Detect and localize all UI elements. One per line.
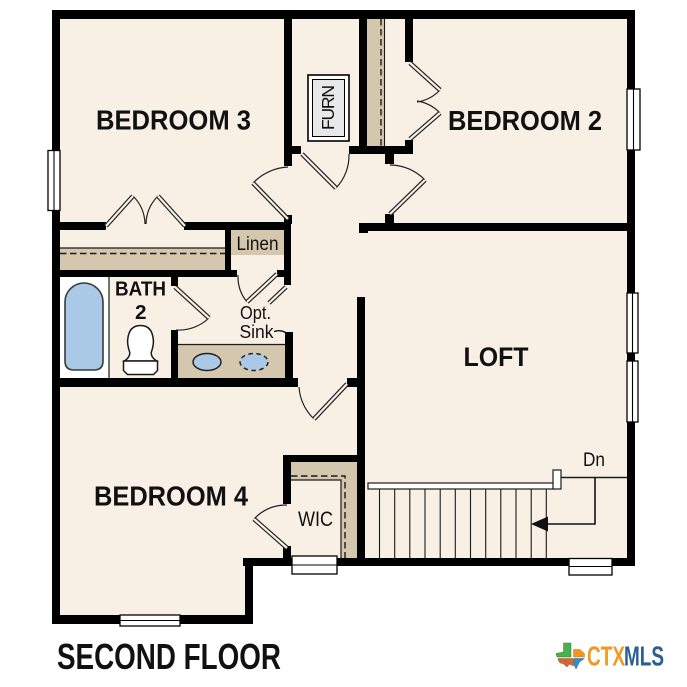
svg-text:SECOND FLOOR: SECOND FLOOR — [57, 636, 281, 677]
svg-text:Dn: Dn — [583, 449, 605, 471]
svg-text:BEDROOM 4: BEDROOM 4 — [94, 481, 249, 512]
svg-text:FURN: FURN — [318, 85, 338, 130]
svg-text:BATH: BATH — [115, 278, 166, 301]
svg-text:Sink: Sink — [240, 322, 275, 342]
svg-text:BEDROOM 2: BEDROOM 2 — [448, 105, 602, 136]
svg-text:CTX: CTX — [587, 640, 625, 671]
svg-text:Opt.: Opt. — [240, 303, 271, 323]
svg-text:MLS: MLS — [624, 640, 664, 671]
svg-text:Linen: Linen — [237, 233, 279, 255]
svg-text:BEDROOM 3: BEDROOM 3 — [96, 105, 251, 136]
svg-text:LOFT: LOFT — [464, 342, 529, 372]
svg-text:WIC: WIC — [298, 508, 333, 531]
svg-text:2: 2 — [135, 301, 147, 324]
